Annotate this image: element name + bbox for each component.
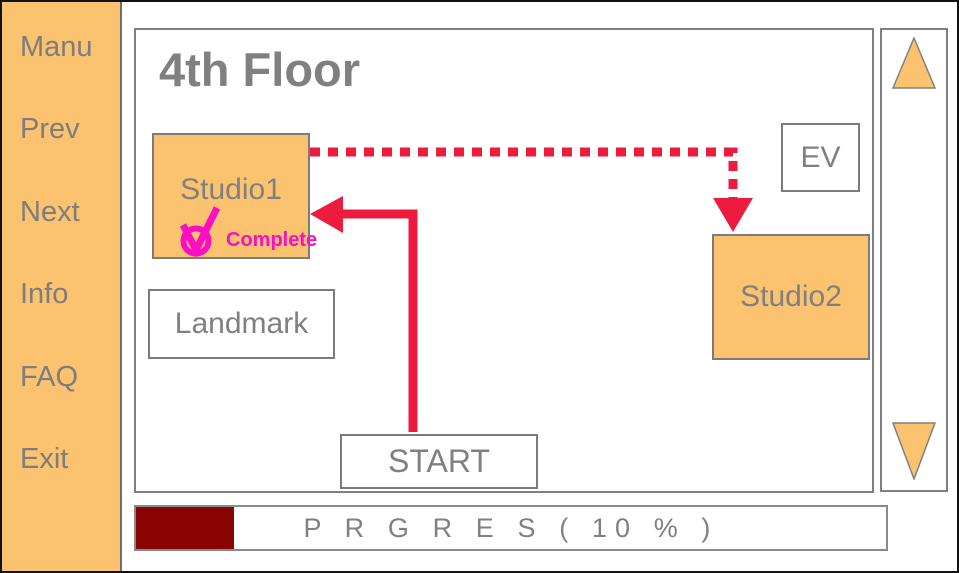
progress-bar: P R G R E S ( 10 % ) — [134, 505, 888, 551]
sidebar: Manu Prev Next Info FAQ Exit — [2, 2, 122, 571]
solid-route-line — [343, 214, 413, 432]
sidebar-item-exit[interactable]: Exit — [20, 445, 68, 474]
progress-label: P R G R E S ( 10 % ) — [136, 507, 886, 549]
room-studio2: Studio2 — [712, 234, 870, 360]
scroll-up-icon[interactable] — [892, 37, 936, 89]
room-landmark: Landmark — [148, 289, 335, 359]
sidebar-item-next[interactable]: Next — [20, 198, 80, 227]
sidebar-item-manu[interactable]: Manu — [20, 33, 93, 62]
floor-title: 4th Floor — [159, 44, 360, 96]
sidebar-item-prev[interactable]: Prev — [20, 115, 80, 144]
room-studio1-label: Studio1 — [154, 175, 308, 205]
sidebar-item-info[interactable]: Info — [20, 280, 68, 309]
arrowhead-down-icon — [713, 198, 753, 232]
arrowhead-left-icon — [310, 196, 343, 233]
room-landmark-label: Landmark — [150, 291, 333, 357]
sidebar-item-faq[interactable]: FAQ — [20, 363, 78, 392]
room-studio2-label: Studio2 — [714, 236, 868, 358]
room-elevator-label: EV — [783, 125, 858, 190]
dashed-route-line — [310, 152, 733, 202]
kiosk-screen: Manu Prev Next Info FAQ Exit 4th Floor S… — [0, 0, 959, 573]
scroll-down-icon[interactable] — [892, 422, 936, 480]
checkmark-circle-icon — [176, 203, 228, 259]
start-marker: START — [340, 434, 538, 489]
status-badge: Complete — [174, 203, 308, 259]
room-studio1: Studio1 Complete — [152, 133, 310, 259]
room-elevator: EV — [781, 123, 860, 192]
complete-label: Complete — [226, 230, 317, 250]
floor-map-panel: 4th Floor Studio1 Complete Landmark EV S… — [134, 28, 874, 493]
start-marker-label: START — [342, 436, 536, 487]
scrollbar — [880, 28, 948, 492]
